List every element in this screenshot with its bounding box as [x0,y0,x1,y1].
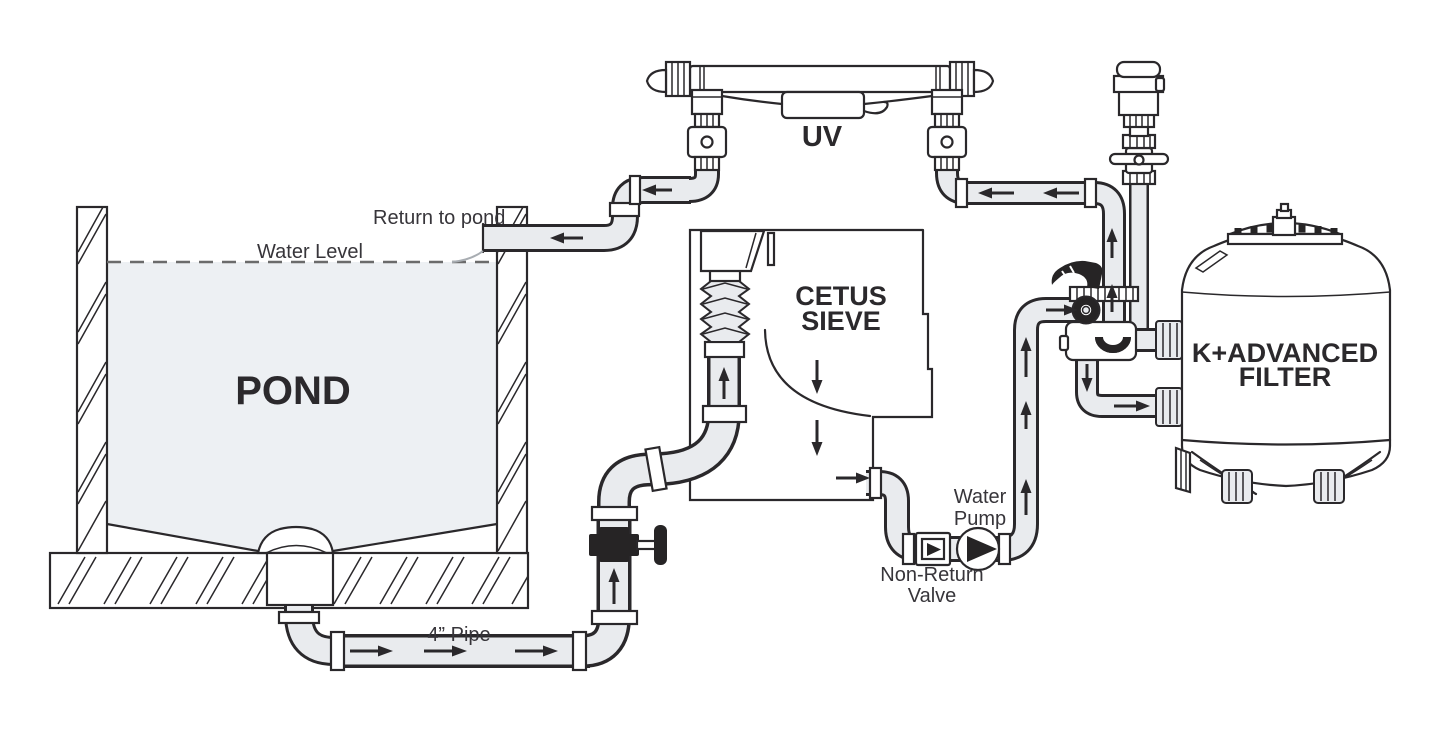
water-pump-label-line1: Water [954,486,1007,508]
riser-flange-upper [592,507,637,520]
water-pump-label-line2: Pump [954,508,1006,530]
drain-flange [279,612,319,623]
air-valve-body [1119,91,1158,115]
pond-label: POND [235,369,351,413]
uv-label: UV [802,121,843,153]
uv-end-cap-left [647,70,666,92]
non-return-valve [916,533,950,565]
sieve-pipe-coupling [703,406,746,422]
four-inch-pipe-label: 4” Pipe [427,624,490,646]
uv-tee-left [692,90,722,114]
filter-label-line2: FILTER [1239,362,1331,392]
sieve-weir-plate [768,233,774,265]
pipe-coupling [573,632,586,670]
diagram-canvas: POND Water Level Return to pond 4” Pipe … [0,0,1445,738]
pond-filtration-diagram: POND Water Level Return to pond 4” Pipe … [0,0,1445,738]
return-to-pond-label: Return to pond [373,207,505,229]
non-return-valve-label-line1: Non-Return [880,564,983,586]
return-splash [452,251,483,262]
filter-union-lower [1156,388,1182,426]
filter-union-upper [1156,321,1182,359]
bellows-collar-lower [705,342,744,357]
pipe-coupling [999,534,1010,564]
uv-unit [647,62,993,170]
cetus-sieve-label-line2: SIEVE [801,306,881,336]
pipe-coupling [1085,179,1096,207]
uv-tube [690,66,950,92]
pipe-coupling [331,632,344,670]
multiport-valve-handle [1052,261,1103,289]
riser-flange-lower [592,611,637,624]
drain-sump [267,553,333,605]
uv-end-cap-right [974,70,993,92]
non-return-valve-label-line2: Valve [908,585,957,607]
water-level-label: Water Level [257,241,363,263]
pipe-coupling [903,534,914,564]
uv-ballast [782,92,864,118]
pipe-coupling [956,179,967,207]
waste-standpipe [1110,62,1168,184]
uv-tee-right [932,90,962,114]
gate-valve [589,525,667,565]
air-valve-cap [1117,62,1160,77]
pipe-coupling [630,176,640,204]
pipe-coupling [870,468,881,498]
